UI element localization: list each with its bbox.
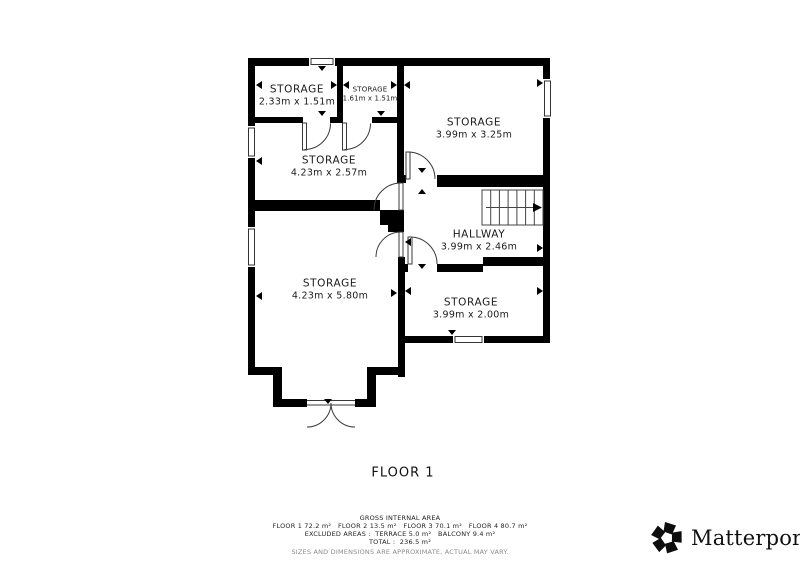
room-name: STORAGE: [259, 84, 335, 96]
wall-segment: [397, 58, 404, 175]
wall-segment: [388, 222, 404, 232]
door-arc: [376, 232, 403, 257]
room-label-storage-main: STORAGE 4.23m x 5.80m: [292, 278, 368, 303]
wall-segment: [273, 399, 307, 407]
room-label-hallway: HALLWAY 3.99m x 2.46m: [441, 229, 517, 254]
window-symbol: [246, 227, 256, 267]
door-arc: [408, 237, 437, 264]
wall-segment: [248, 117, 303, 123]
room-name: STORAGE: [436, 117, 512, 129]
room-dimensions: 4.23m x 5.80m: [292, 292, 368, 303]
room-dimensions: 4.23m x 2.57m: [291, 169, 367, 180]
staircase: [482, 190, 543, 225]
room-label-storage-top-left: STORAGE 2.33m x 1.51m: [259, 84, 335, 109]
wall-segment: [398, 257, 405, 377]
room-name: STORAGE: [292, 278, 368, 290]
floor-title: FLOOR 1: [371, 466, 434, 481]
matterport-logo: Matterport™: [650, 521, 800, 555]
room-dimensions: 1.61m x 1.51m: [343, 95, 398, 103]
window-symbol: [542, 79, 552, 118]
wall-segment: [248, 58, 255, 375]
wall-segment: [397, 175, 406, 183]
double-door: [307, 401, 355, 428]
room-name: HALLWAY: [441, 229, 517, 241]
wall-segment: [437, 264, 483, 272]
wall-segment: [483, 257, 543, 266]
wall-segment: [398, 264, 408, 272]
wall-segment: [367, 367, 405, 375]
room-name: STORAGE: [343, 85, 398, 93]
room-name: STORAGE: [433, 297, 509, 309]
wall-segment: [437, 175, 550, 187]
door-arc: [406, 152, 435, 179]
floor-plan-page: STORAGE 2.33m x 1.51m STORAGE 1.61m x 1.…: [0, 0, 800, 565]
wall-segment: [248, 200, 380, 211]
room-label-storage-lower-right: STORAGE 3.99m x 2.00m: [433, 297, 509, 322]
window-symbol: [309, 56, 335, 67]
window-symbol: [453, 334, 484, 344]
room-label-storage-upper-left: STORAGE 4.23m x 2.57m: [291, 155, 367, 180]
door-arc: [303, 123, 331, 150]
matterport-wordmark: Matterport: [691, 526, 800, 550]
room-name: STORAGE: [291, 155, 367, 167]
room-dimensions: 2.33m x 1.51m: [259, 98, 335, 109]
room-dimensions: 3.99m x 2.46m: [441, 243, 517, 254]
window-symbol: [246, 126, 256, 158]
room-label-storage-top-right: STORAGE 3.99m x 3.25m: [436, 117, 512, 142]
matterport-icon: [650, 521, 684, 555]
room-dimensions: 3.99m x 2.00m: [433, 311, 509, 322]
room-label-storage-top-middle: STORAGE 1.61m x 1.51m: [343, 85, 398, 102]
door-arc: [343, 123, 371, 150]
room-dimensions: 3.99m x 3.25m: [436, 131, 512, 142]
